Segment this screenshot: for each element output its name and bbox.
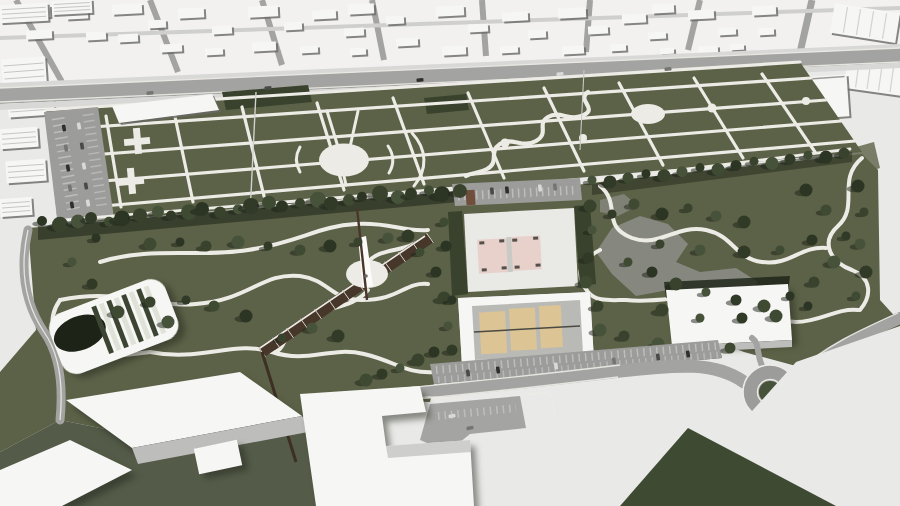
tree bbox=[324, 240, 337, 253]
tree bbox=[441, 241, 452, 252]
tree bbox=[588, 226, 597, 235]
tree bbox=[860, 266, 873, 279]
building bbox=[344, 27, 364, 36]
tree bbox=[656, 304, 669, 317]
tree bbox=[684, 204, 693, 213]
kiosk-building bbox=[466, 190, 476, 206]
tree bbox=[214, 207, 226, 219]
building bbox=[752, 5, 776, 15]
tree bbox=[677, 166, 688, 177]
tree bbox=[852, 180, 865, 193]
tree bbox=[828, 256, 841, 269]
tree bbox=[412, 354, 425, 367]
building bbox=[500, 46, 518, 54]
tree bbox=[852, 292, 861, 301]
tree bbox=[766, 157, 779, 170]
building bbox=[622, 13, 646, 23]
tree bbox=[52, 217, 68, 233]
building bbox=[468, 23, 488, 32]
tree bbox=[243, 198, 259, 214]
car bbox=[664, 67, 671, 71]
tree bbox=[737, 313, 748, 324]
tree bbox=[758, 300, 771, 313]
tree bbox=[112, 306, 125, 319]
tree bbox=[855, 239, 866, 250]
building bbox=[350, 48, 366, 56]
building bbox=[718, 28, 736, 36]
tree bbox=[804, 302, 813, 311]
render-canvas: Aerial 3D architectural masterplan rende… bbox=[0, 0, 900, 506]
tree bbox=[696, 314, 705, 323]
car bbox=[553, 183, 557, 190]
building bbox=[248, 5, 279, 18]
building bbox=[300, 46, 318, 54]
building bbox=[148, 20, 166, 29]
tree bbox=[731, 160, 742, 171]
building bbox=[688, 9, 714, 19]
tree bbox=[821, 205, 832, 216]
tree bbox=[623, 172, 634, 183]
tree bbox=[278, 334, 287, 343]
tree bbox=[209, 301, 220, 312]
building bbox=[26, 29, 52, 39]
building bbox=[660, 48, 674, 55]
tree bbox=[711, 211, 722, 222]
tree bbox=[402, 230, 415, 243]
tree bbox=[583, 253, 594, 264]
tree bbox=[377, 369, 388, 380]
tree bbox=[738, 246, 751, 259]
tree bbox=[786, 292, 795, 301]
tree bbox=[807, 235, 818, 246]
tree bbox=[770, 310, 783, 323]
tree bbox=[658, 169, 671, 182]
tree bbox=[264, 242, 273, 251]
tree bbox=[809, 277, 820, 288]
tree bbox=[842, 232, 851, 241]
building bbox=[5, 159, 46, 184]
tree bbox=[431, 267, 442, 278]
tree bbox=[695, 245, 706, 256]
building bbox=[386, 16, 404, 25]
building bbox=[610, 44, 626, 52]
tree bbox=[670, 278, 683, 291]
car bbox=[490, 187, 494, 194]
building bbox=[502, 11, 528, 21]
tree bbox=[232, 236, 245, 249]
tree bbox=[307, 323, 318, 334]
tree bbox=[738, 216, 751, 229]
tree bbox=[594, 324, 607, 337]
tree bbox=[839, 148, 850, 159]
tree bbox=[85, 212, 97, 224]
building bbox=[558, 7, 586, 18]
tree bbox=[37, 216, 47, 226]
tree bbox=[182, 296, 191, 305]
building bbox=[284, 22, 302, 31]
tree bbox=[434, 186, 450, 202]
tree bbox=[405, 188, 417, 200]
tree bbox=[416, 248, 425, 257]
tree bbox=[453, 184, 467, 198]
small-circle-plaza bbox=[631, 104, 665, 124]
tree bbox=[750, 157, 759, 166]
tree bbox=[584, 200, 597, 213]
tree bbox=[133, 208, 147, 222]
tree bbox=[166, 211, 176, 221]
building bbox=[758, 28, 774, 36]
tree bbox=[604, 175, 617, 188]
pink-courts bbox=[477, 235, 542, 273]
building bbox=[112, 3, 142, 15]
building bbox=[648, 32, 666, 40]
tree bbox=[360, 374, 373, 387]
tree bbox=[785, 154, 796, 165]
building bbox=[86, 31, 106, 40]
tree bbox=[448, 296, 457, 305]
tree bbox=[354, 238, 363, 247]
tree bbox=[201, 241, 212, 252]
building bbox=[212, 25, 232, 34]
tree bbox=[429, 347, 440, 358]
building bbox=[436, 5, 464, 16]
car bbox=[505, 186, 509, 193]
tree bbox=[68, 258, 77, 267]
building bbox=[178, 7, 204, 18]
tree bbox=[152, 206, 164, 218]
tree bbox=[647, 267, 658, 278]
tree bbox=[440, 218, 449, 227]
tree bbox=[608, 210, 617, 219]
building bbox=[730, 44, 744, 51]
tree bbox=[712, 163, 725, 176]
tree bbox=[588, 176, 597, 185]
tree bbox=[444, 322, 453, 331]
building bbox=[118, 33, 138, 42]
tree bbox=[357, 192, 367, 202]
tree bbox=[447, 345, 458, 356]
tree bbox=[276, 200, 288, 212]
building bbox=[160, 43, 182, 52]
tree bbox=[593, 301, 604, 312]
tree bbox=[295, 245, 306, 256]
tree bbox=[656, 208, 669, 221]
tree bbox=[804, 151, 813, 160]
building bbox=[652, 3, 674, 13]
tree bbox=[731, 295, 742, 306]
tree bbox=[725, 343, 736, 354]
tree bbox=[800, 184, 813, 197]
tree bbox=[702, 288, 711, 297]
car bbox=[146, 91, 153, 95]
tree bbox=[176, 238, 185, 247]
car bbox=[416, 78, 423, 82]
building bbox=[562, 45, 584, 54]
tree bbox=[580, 276, 593, 289]
building bbox=[348, 3, 374, 14]
tree bbox=[145, 297, 156, 308]
tree bbox=[162, 316, 175, 329]
tree bbox=[332, 330, 345, 343]
building bbox=[52, 0, 93, 15]
tree bbox=[642, 169, 651, 178]
tree bbox=[619, 331, 630, 342]
building bbox=[588, 25, 608, 34]
tree bbox=[860, 208, 869, 217]
aerial-masterplan-render: Aerial 3D architectural masterplan rende… bbox=[0, 0, 900, 506]
tree bbox=[372, 185, 388, 201]
tree bbox=[240, 310, 253, 323]
tree bbox=[629, 199, 640, 210]
tree bbox=[295, 198, 305, 208]
car bbox=[538, 184, 542, 191]
building bbox=[0, 127, 39, 150]
tree bbox=[820, 151, 833, 164]
tree bbox=[776, 246, 785, 255]
tree bbox=[87, 279, 98, 290]
building bbox=[252, 41, 276, 51]
building bbox=[528, 30, 546, 39]
car bbox=[264, 86, 271, 90]
building bbox=[0, 197, 33, 217]
tree bbox=[92, 234, 101, 243]
tree bbox=[195, 202, 209, 216]
tree bbox=[144, 238, 157, 251]
tree bbox=[324, 196, 338, 210]
building bbox=[205, 48, 223, 56]
building bbox=[1, 56, 47, 85]
building bbox=[0, 3, 48, 23]
building bbox=[312, 9, 336, 19]
tree bbox=[696, 163, 705, 172]
tree bbox=[383, 233, 394, 244]
tree bbox=[396, 364, 405, 373]
building bbox=[442, 45, 466, 55]
tree bbox=[624, 258, 633, 267]
tree bbox=[114, 210, 130, 226]
building bbox=[396, 37, 418, 46]
tree bbox=[656, 240, 665, 249]
car bbox=[556, 72, 563, 76]
